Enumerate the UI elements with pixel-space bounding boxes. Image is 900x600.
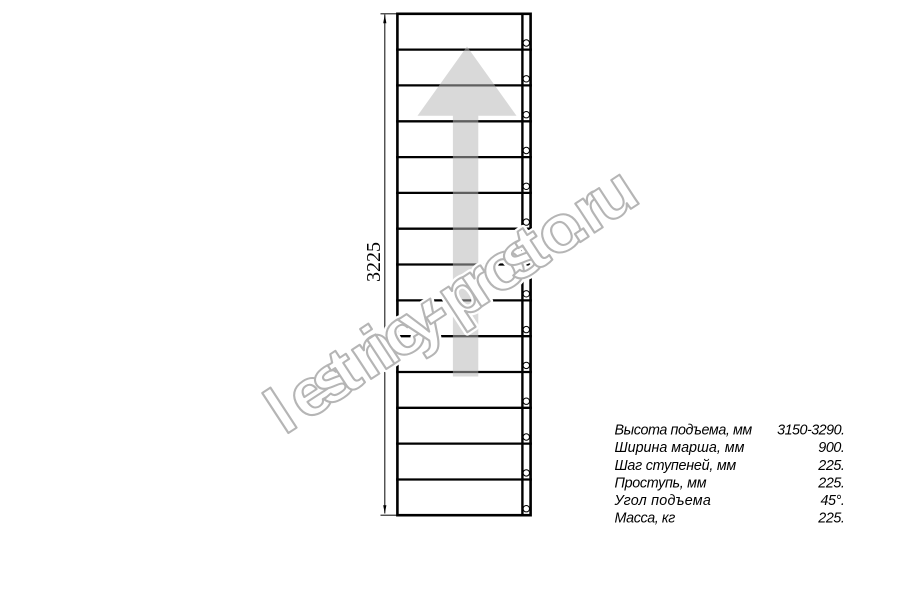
svg-text:225.: 225. bbox=[817, 458, 844, 474]
svg-text:3150-3290.: 3150-3290. bbox=[777, 423, 844, 439]
svg-text:45°.: 45°. bbox=[821, 493, 845, 509]
svg-text:Ширина марша, мм: Ширина марша, мм bbox=[615, 440, 745, 456]
svg-text:Шаг ступеней, мм: Шаг ступеней, мм bbox=[615, 458, 737, 474]
svg-text:Масса, кг: Масса, кг bbox=[615, 511, 676, 527]
svg-text:3225: 3225 bbox=[363, 242, 385, 282]
svg-text:Проступь, мм: Проступь, мм bbox=[615, 476, 707, 492]
svg-text:225.: 225. bbox=[817, 476, 844, 492]
svg-text:225.: 225. bbox=[817, 511, 844, 527]
svg-text:900.: 900. bbox=[818, 440, 844, 456]
svg-text:Высота подъема, мм: Высота подъема, мм bbox=[615, 423, 753, 439]
svg-text:Угол подъема: Угол подъема bbox=[614, 493, 712, 509]
svg-text:lestnicy-prosto.ru: lestnicy-prosto.ru bbox=[252, 151, 651, 448]
